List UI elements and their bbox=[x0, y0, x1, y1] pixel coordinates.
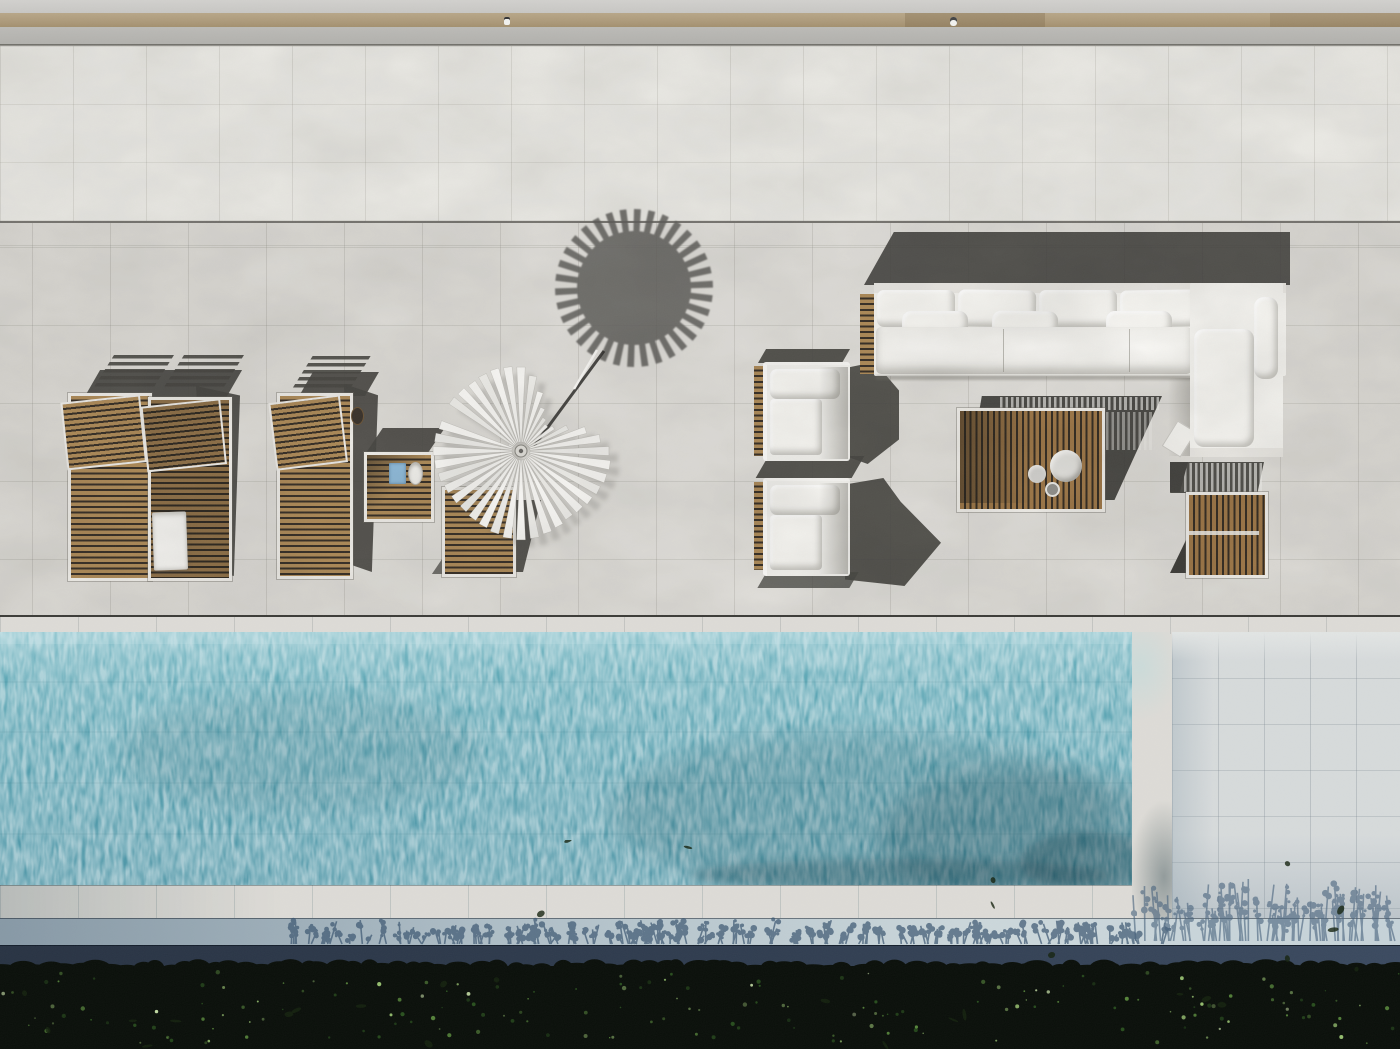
photo-grain-overlay bbox=[0, 0, 1400, 1049]
aerial-pool-terrace-photo: Aerial top-down view of a white marble p… bbox=[0, 0, 1400, 1049]
